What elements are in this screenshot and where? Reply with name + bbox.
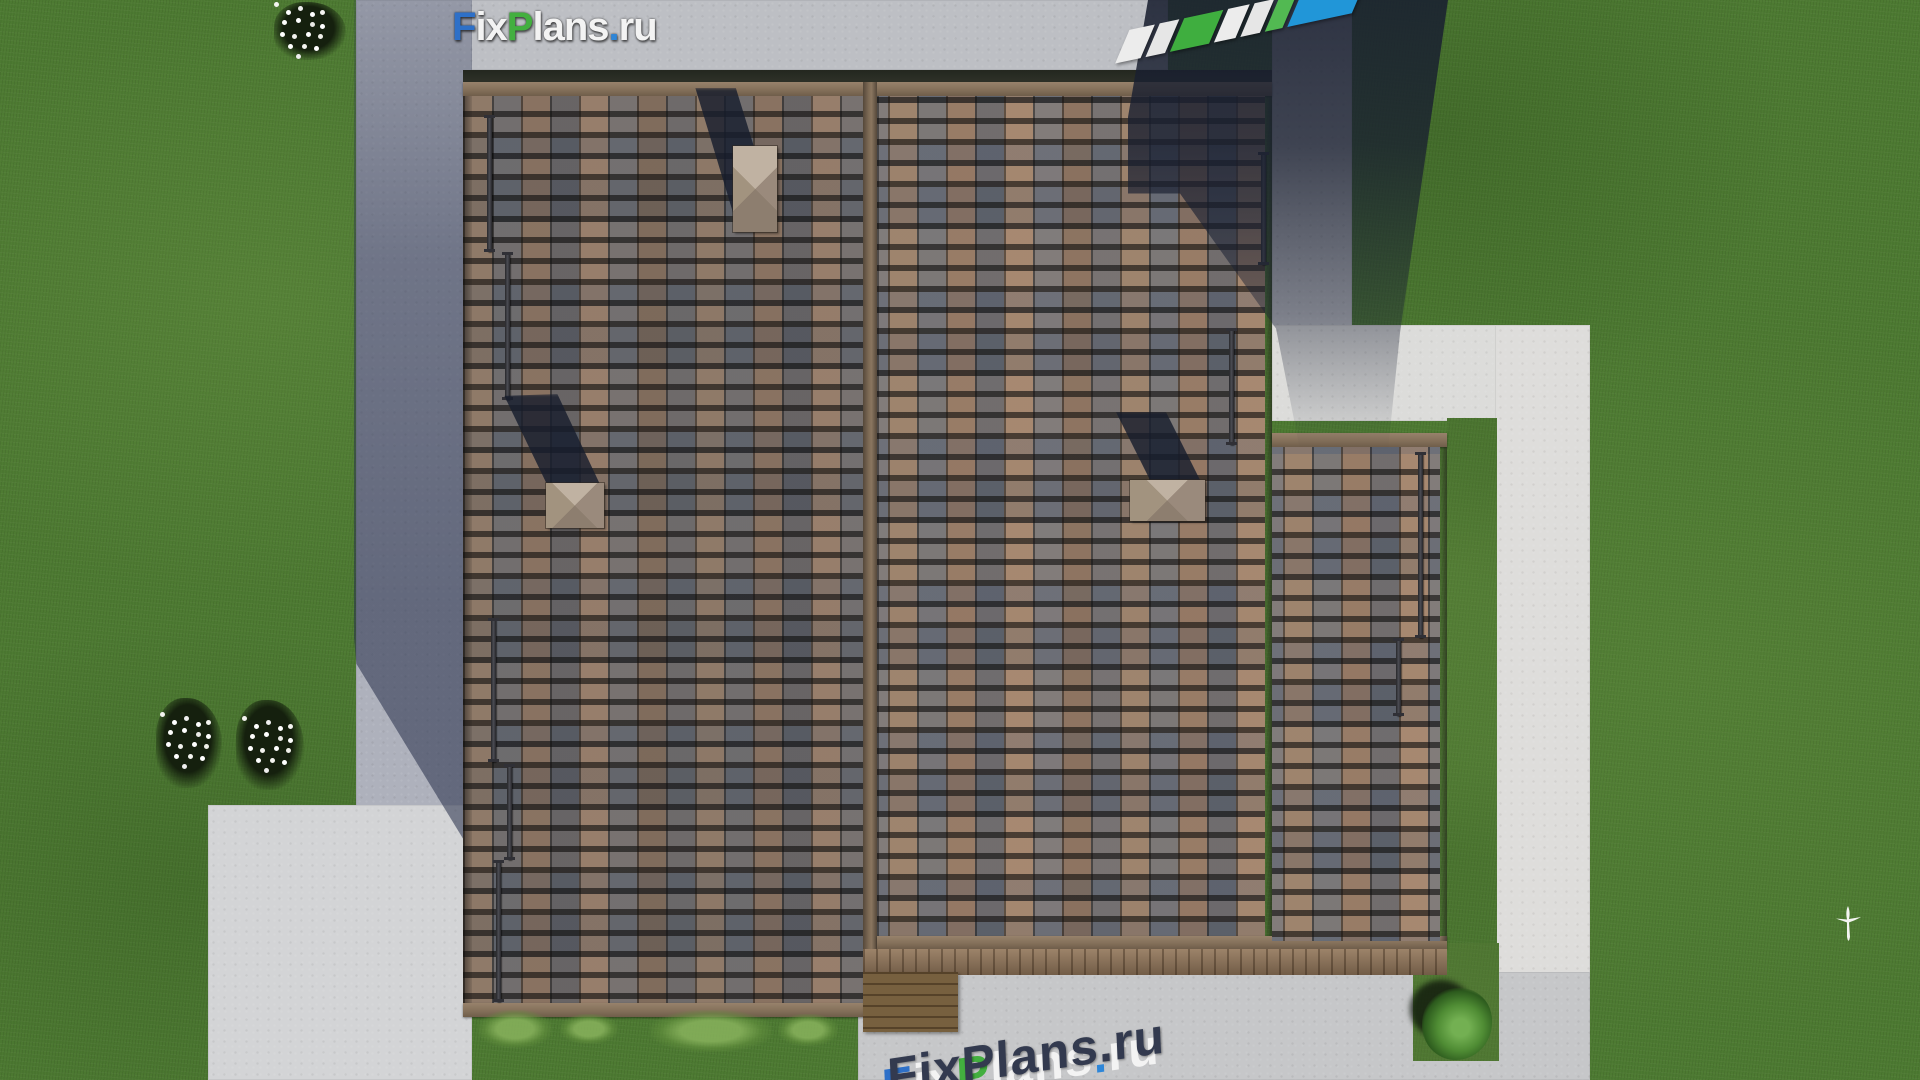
logo-letter: ix: [475, 5, 506, 49]
site-logo: FixPlans.ru: [452, 5, 657, 50]
logo-letter: F: [886, 1044, 920, 1080]
chimney-cap-right: [1130, 480, 1205, 521]
chimney-cap-top: [733, 146, 777, 232]
bird: [1836, 906, 1862, 944]
roof-left-slope: [463, 96, 863, 1004]
flower-bush: [236, 700, 304, 790]
logo-letter: .: [609, 5, 619, 49]
roof-left-edge: [463, 96, 472, 1004]
roof-pipe: [1396, 638, 1401, 716]
deck-patch: [863, 972, 958, 1032]
walkway-vertical: [1495, 325, 1590, 1080]
flower-bush: [274, 2, 346, 60]
roof-pipe: [505, 252, 510, 400]
bush-foliage: [236, 700, 304, 790]
bush-flowers: [274, 2, 279, 7]
bush-foliage: [274, 2, 346, 60]
roof-pipe: [507, 764, 512, 860]
roof-pipe: [1418, 452, 1423, 638]
bush-flowers: [242, 716, 247, 721]
logo-letter: P: [507, 5, 533, 49]
roof-pipe: [496, 860, 501, 1002]
logo-letter: lans: [532, 5, 608, 49]
roof-right-wing: [1272, 447, 1440, 941]
grass-strip-right-of-wing: [1447, 418, 1497, 953]
shrub: [560, 1014, 618, 1044]
logo-letter: P: [960, 1032, 996, 1080]
roof-pipe: [487, 115, 492, 252]
roof-pipe: [491, 618, 496, 762]
shrub: [778, 1014, 838, 1046]
bush-flowers: [160, 712, 165, 717]
shrub: [478, 1010, 552, 1048]
logo-letter: ru: [1112, 1007, 1166, 1071]
chimney-cap-left: [546, 483, 604, 528]
roof-valley: [863, 82, 877, 1017]
bird-icon: [1836, 906, 1862, 944]
patio-bottom-left: [208, 805, 472, 1080]
letter-top-chip: [1287, 0, 1366, 27]
logo-letter: ru: [619, 5, 657, 49]
bush-foliage: [156, 698, 222, 788]
logo-letter: ix: [917, 1037, 963, 1080]
logo-letter: F: [452, 5, 475, 49]
shrub: [650, 1010, 772, 1052]
aerial-roof-render: FixPlans.ru FixPlans.ru FixPlans.ru: [0, 0, 1920, 1080]
roof-pipe: [1229, 328, 1234, 445]
flower-bush: [156, 698, 222, 788]
wing-right-edge: [1440, 447, 1447, 941]
